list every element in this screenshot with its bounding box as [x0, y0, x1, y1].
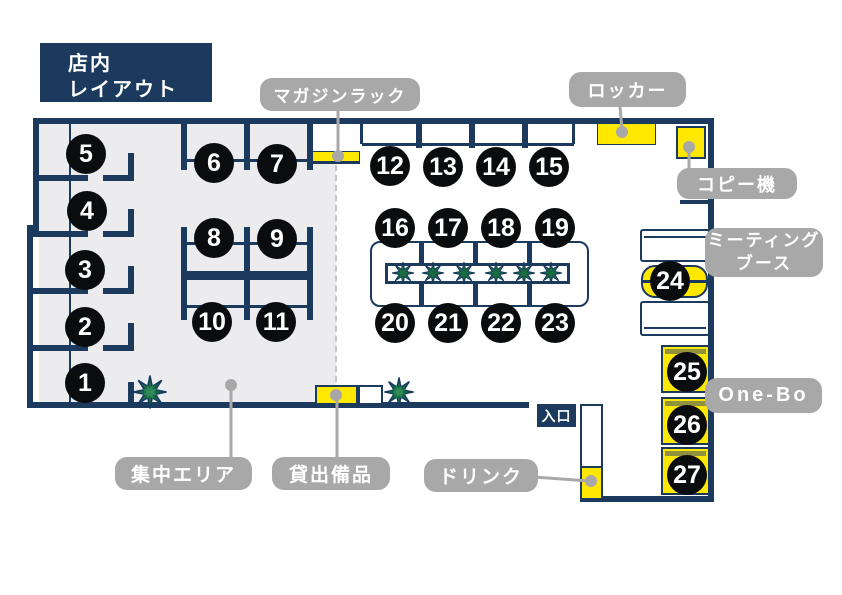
- planter-plant-icon: [539, 261, 563, 285]
- seat-25: 25: [667, 352, 707, 392]
- wall-bottom-left: [27, 402, 529, 408]
- planter-plant-icon: [512, 261, 536, 285]
- seat-9: 9: [257, 219, 297, 259]
- booth-divider-4-3: [27, 231, 88, 237]
- planter-plant-icon: [452, 261, 476, 285]
- booth-4-partition-v: [128, 209, 134, 237]
- seat-7: 7: [257, 144, 297, 184]
- rental-equipment-label: 貸出備品: [272, 457, 390, 490]
- seat-15: 15: [529, 147, 569, 187]
- rental-equipment-box-white: [358, 385, 383, 405]
- meeting-table-1: [640, 229, 710, 262]
- magazine-rack: [312, 151, 360, 164]
- title-line-2: レイアウト: [68, 77, 212, 103]
- magazine-nook-floor: [313, 124, 336, 151]
- meeting-booth-label-line-1: ミーティング: [708, 230, 821, 253]
- booth-5-partition-v: [128, 153, 134, 181]
- seat-24: 24: [650, 261, 690, 301]
- meeting-area-wall-stub: [680, 200, 713, 204]
- drink-label: ドリンク: [424, 459, 538, 492]
- desk-partition-6-7: [244, 124, 250, 170]
- seat-16: 16: [375, 208, 415, 248]
- planter-plant-icon: [391, 261, 415, 285]
- drink-station: [582, 466, 601, 498]
- counter-end-right: [572, 124, 575, 144]
- seat-11: 11: [256, 302, 296, 342]
- seat-8: 8: [194, 218, 234, 258]
- seat-5: 5: [66, 134, 106, 174]
- locker-label: ロッカー: [569, 72, 686, 107]
- wall-left-lower: [27, 231, 33, 408]
- seat-6: 6: [194, 143, 234, 183]
- seat-19: 19: [535, 208, 575, 248]
- island-center-divider: [181, 271, 313, 280]
- seat-23: 23: [535, 303, 575, 343]
- seat-3: 3: [65, 250, 105, 290]
- meeting-booth-label-line-2: ブース: [736, 253, 792, 276]
- one-bo-label: One-Bo: [705, 378, 822, 413]
- seat-21: 21: [428, 303, 468, 343]
- seat-1: 1: [65, 363, 105, 403]
- seat-4: 4: [67, 191, 107, 231]
- title-line-1: 店内: [68, 51, 212, 77]
- entrance-sign: 入口: [537, 404, 576, 427]
- rental-equipment-box: [315, 385, 358, 405]
- page-title: 店内 レイアウト: [40, 43, 212, 102]
- seat-17: 17: [428, 208, 468, 248]
- planter-plant-icon: [421, 261, 445, 285]
- desk-partition-6-left: [181, 124, 187, 170]
- seat-27: 27: [667, 455, 707, 495]
- seat-12: 12: [370, 146, 410, 186]
- counter-end-left: [360, 124, 363, 144]
- copier: [676, 126, 706, 159]
- seat-14: 14: [476, 147, 516, 187]
- focus-area-label: 集中エリア: [115, 457, 252, 490]
- copier-label: コピー機: [677, 168, 797, 199]
- plant-icon: [132, 374, 168, 410]
- booth-divider-5-4: [33, 175, 88, 181]
- seat-20: 20: [375, 303, 415, 343]
- seat-18: 18: [481, 208, 521, 248]
- seat-13: 13: [423, 147, 463, 187]
- seat-22: 22: [481, 303, 521, 343]
- booth-2-partition-v: [128, 323, 134, 351]
- booth-3-partition-v: [128, 266, 134, 294]
- magazine-rack-label: マガジンラック: [260, 78, 420, 111]
- store-layout-floor-plan: 店内 レイアウト: [0, 0, 842, 595]
- seat-2: 2: [65, 307, 105, 347]
- planter-plant-icon: [484, 261, 508, 285]
- meeting-table-2: [640, 301, 710, 336]
- focus-area-dashed-divider: [335, 165, 337, 402]
- seat-26: 26: [667, 405, 707, 445]
- plant-icon: [383, 376, 415, 408]
- meeting-booth-label: ミーティング ブース: [705, 228, 823, 277]
- locker: [597, 123, 656, 145]
- seat-10: 10: [192, 302, 232, 342]
